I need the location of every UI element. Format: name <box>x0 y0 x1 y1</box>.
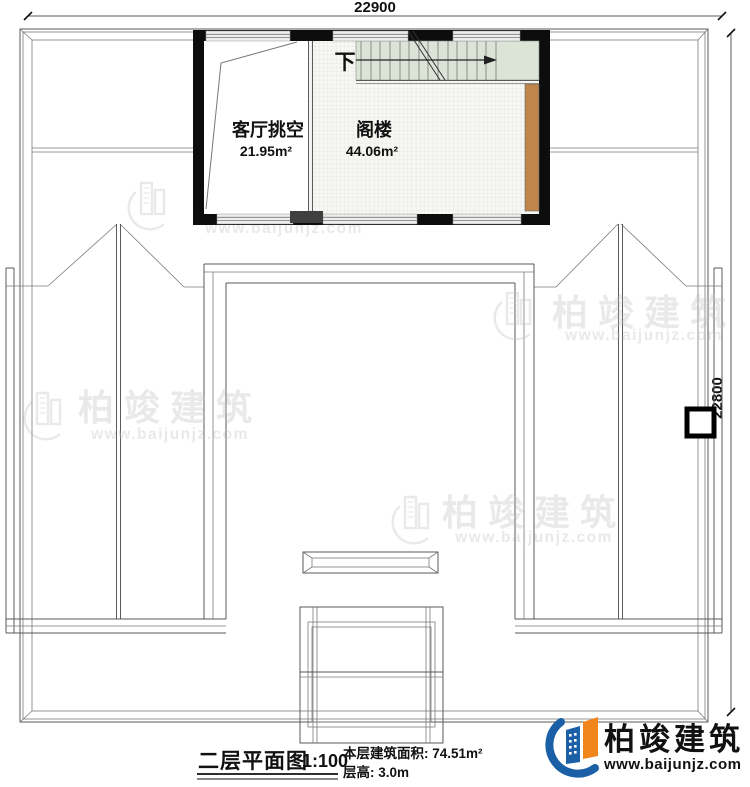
watermark-2: 柏竣建筑 www.baijunjz.com <box>495 292 736 344</box>
watermark-url: www.baijunjz.com <box>90 426 249 443</box>
brand-block: 柏竣建筑 www.baijunjz.com <box>549 717 744 774</box>
attic-block: 下 客厅挑空 21.95m² 阁楼 44.06m² <box>193 30 550 225</box>
dimension-top-value: 22900 <box>354 0 396 16</box>
courtyard-walls <box>204 264 534 619</box>
dimension-top: 22900 <box>24 0 726 20</box>
watermarks: 柏竣建筑 www.baijunjz.com 柏竣建筑 www.baijunjz.… <box>25 179 736 546</box>
attic-door <box>290 211 323 223</box>
title-block: 二层平面图 1:100 本层建筑面积: 74.51m² 层高: 3.0m <box>197 745 483 780</box>
drawing-scale: 1:100 <box>302 751 348 771</box>
wood-strip <box>525 84 539 211</box>
watermark-3: 柏竣建筑 www.baijunjz.com <box>25 387 262 443</box>
floor-plan-page: 22900 22800 <box>0 0 750 787</box>
ridge-beam <box>303 552 438 573</box>
floor-height-label: 层高: 3.0m <box>343 764 409 780</box>
floor-plan-drawing: 22900 22800 <box>0 0 750 787</box>
chimney <box>687 409 714 436</box>
drawing-title: 二层平面图 <box>198 750 308 773</box>
brand-logo-icon <box>549 717 598 774</box>
stair-down-label: 下 <box>335 51 356 74</box>
watermark-url: www.baijunjz.com <box>454 529 613 546</box>
room-label-attic: 阁楼 <box>356 119 392 140</box>
watermark-url: www.baijunjz.com <box>564 327 723 344</box>
watermark-4: 柏竣建筑 www.baijunjz.com <box>393 492 626 546</box>
attic-windows-top <box>206 31 520 41</box>
room-area-attic: 44.06m² <box>346 143 398 159</box>
brand-website: www.baijunjz.com <box>603 756 741 773</box>
floor-area-label: 本层建筑面积: 74.51m² <box>343 745 483 761</box>
watermark-text: 柏竣建筑 <box>442 492 626 533</box>
room-area-living-void: 21.95m² <box>240 143 292 159</box>
watermark-text: 柏竣建筑 <box>78 387 262 428</box>
room-label-living-void: 客厅挑空 <box>232 119 304 140</box>
brand-name: 柏竣建筑 <box>604 722 744 757</box>
porch-roof <box>300 607 443 743</box>
